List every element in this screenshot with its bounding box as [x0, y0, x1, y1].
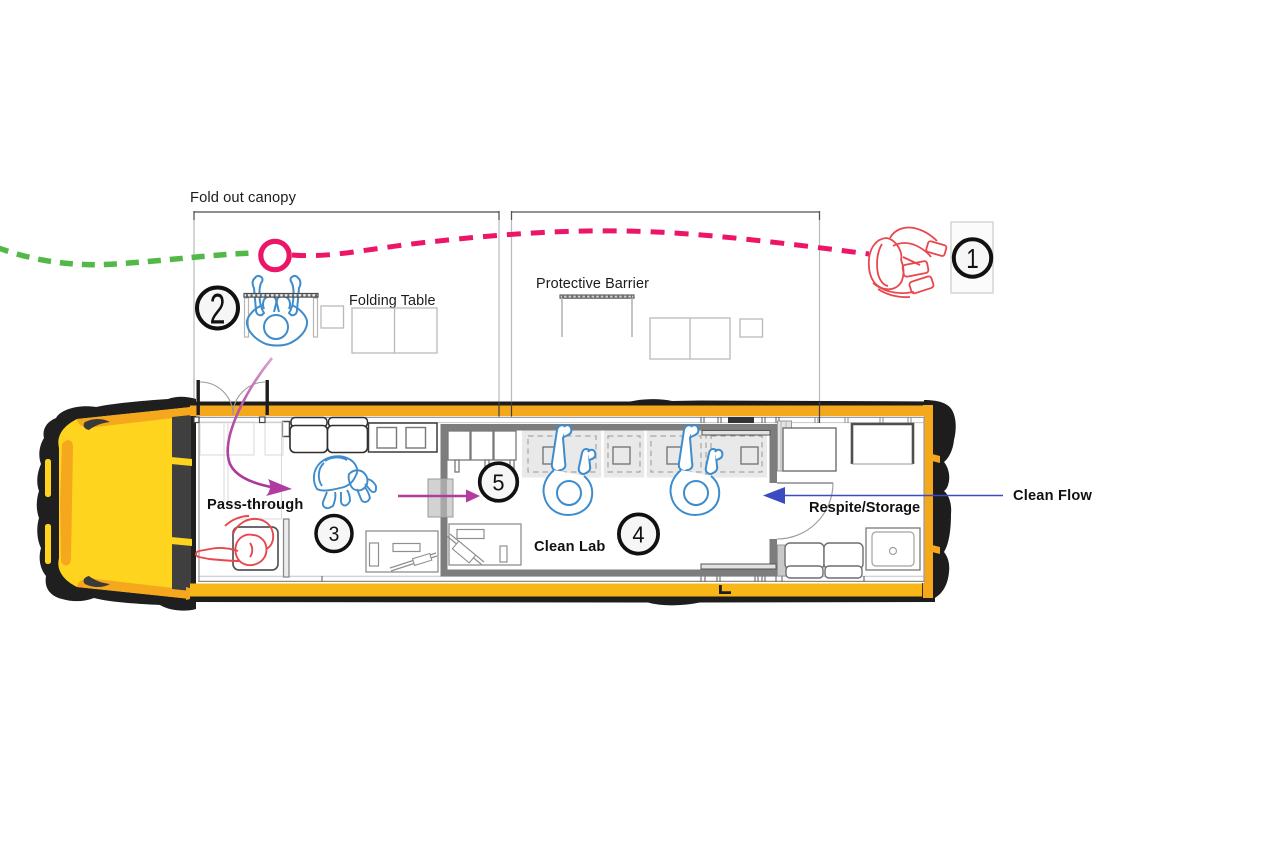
svg-text:Clean Flow: Clean Flow: [1013, 488, 1092, 504]
svg-text:Folding Table: Folding Table: [349, 293, 436, 309]
svg-text:2: 2: [210, 285, 226, 333]
svg-text:Protective Barrier: Protective Barrier: [536, 276, 649, 292]
svg-text:3: 3: [329, 524, 340, 547]
svg-text:Pass-through: Pass-through: [207, 497, 303, 513]
svg-text:1: 1: [966, 244, 978, 275]
svg-text:Fold out canopy: Fold out canopy: [190, 190, 297, 206]
svg-text:Clean Lab: Clean Lab: [534, 539, 606, 555]
svg-text:Respite/Storage: Respite/Storage: [809, 500, 920, 516]
svg-text:5: 5: [492, 470, 504, 496]
svg-text:4: 4: [632, 522, 644, 548]
